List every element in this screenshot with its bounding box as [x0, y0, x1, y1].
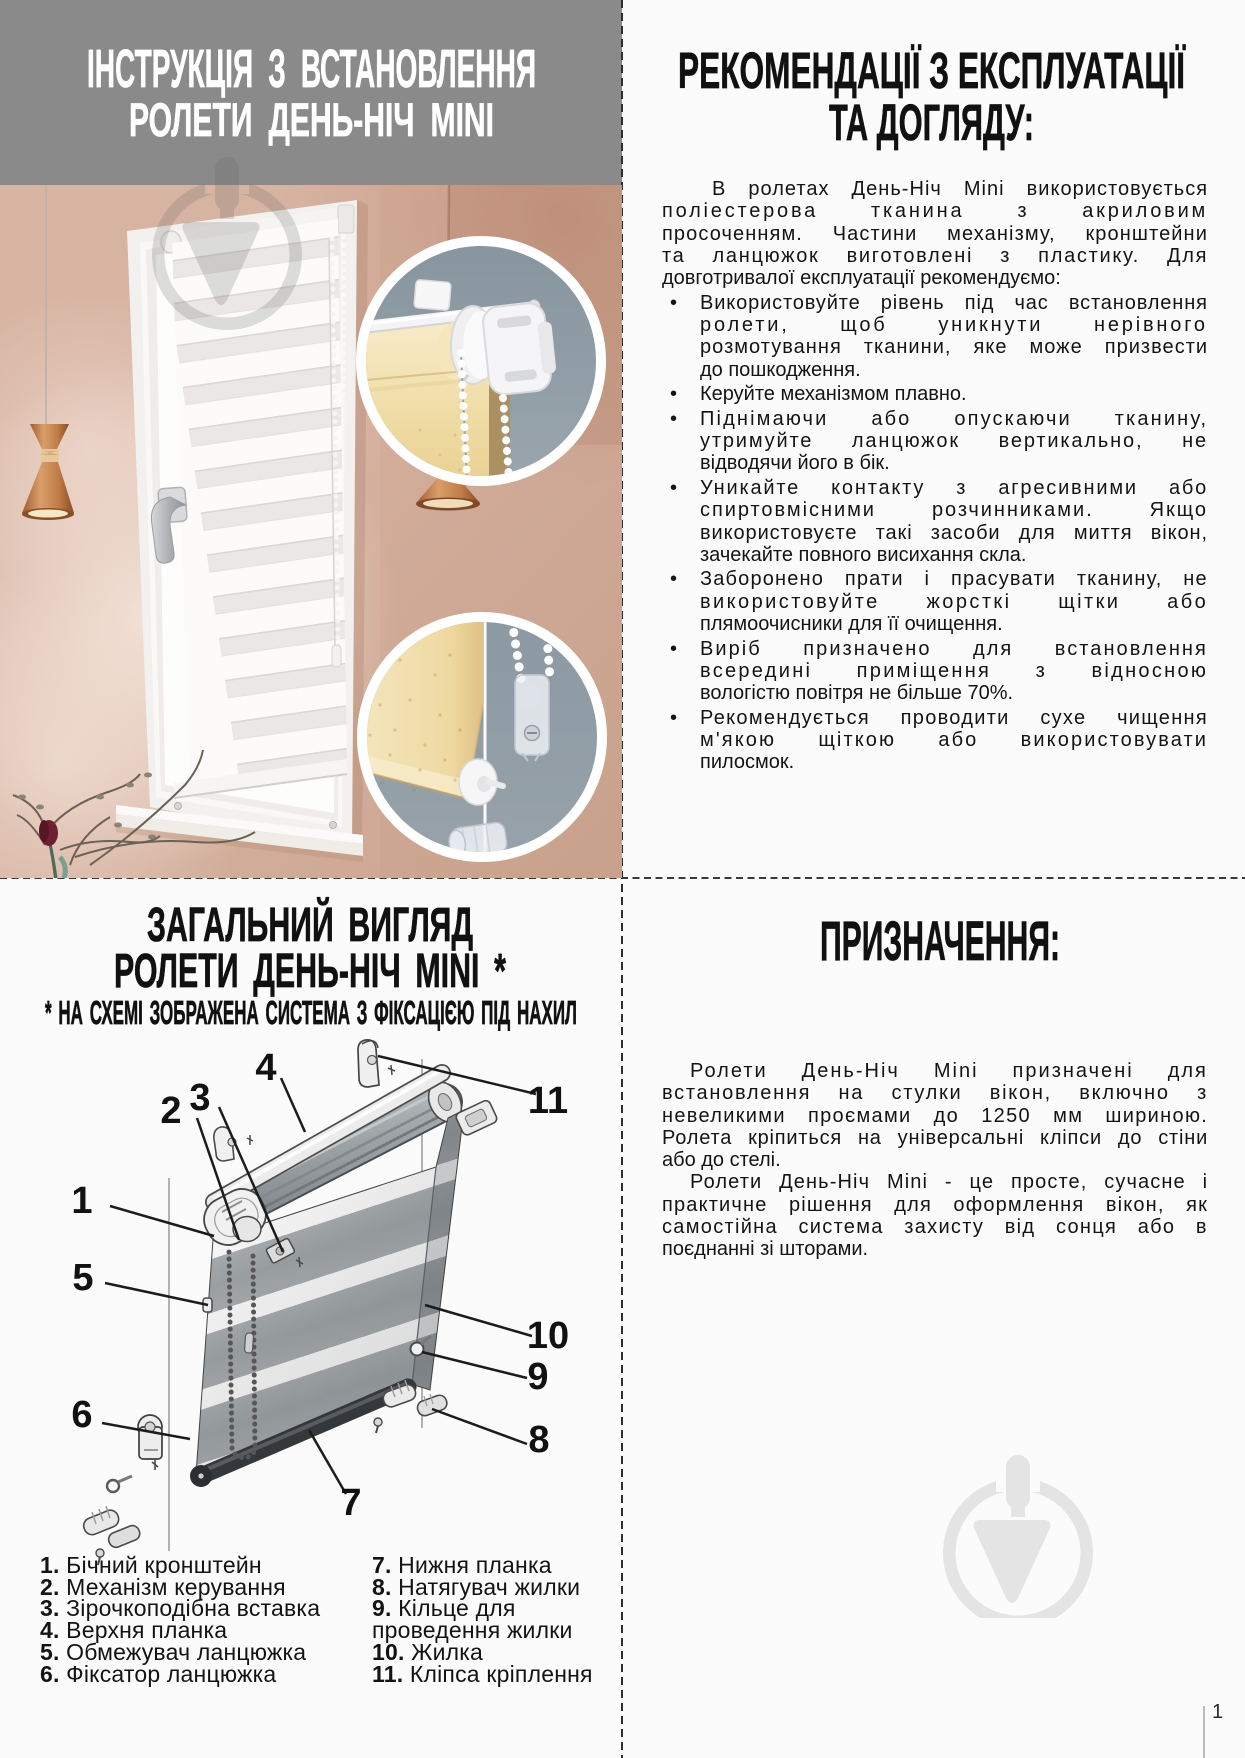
- svg-text:8: 8: [528, 1419, 549, 1461]
- svg-text:10: 10: [527, 1315, 569, 1357]
- svg-text:5: 5: [72, 1257, 93, 1299]
- svg-text:6: 6: [71, 1394, 92, 1436]
- svg-text:3: 3: [189, 1077, 210, 1119]
- svg-text:7: 7: [340, 1482, 361, 1524]
- svg-text:1: 1: [71, 1180, 92, 1222]
- svg-text:11: 11: [528, 1080, 568, 1122]
- svg-text:4: 4: [255, 1047, 276, 1089]
- svg-text:2: 2: [160, 1090, 181, 1132]
- svg-text:9: 9: [527, 1356, 548, 1398]
